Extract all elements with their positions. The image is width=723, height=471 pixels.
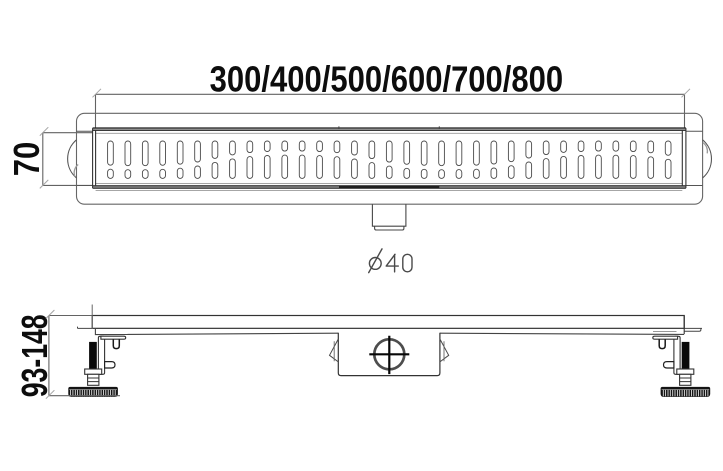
svg-text:70: 70 xyxy=(7,142,48,177)
